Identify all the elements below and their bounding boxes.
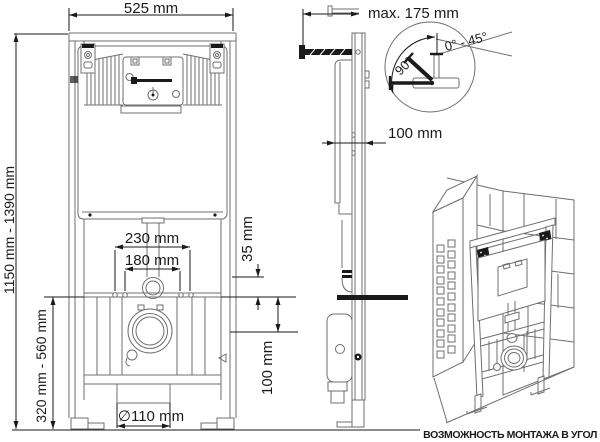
pipe-band	[342, 270, 352, 273]
fixing-hole	[123, 293, 127, 297]
flush-valve-dot	[152, 94, 155, 97]
flush-pipe-flange	[142, 218, 164, 223]
cistern-side	[335, 60, 352, 214]
dim-inlet-offset: 35 mm	[239, 216, 256, 262]
dim-fixing-inner: 180 mm	[125, 252, 179, 269]
cistern-nub-left	[88, 213, 91, 216]
dim-wall-distance: max. 175 mm	[368, 5, 459, 22]
outlet-duct	[117, 384, 170, 403]
frame3d-collar	[505, 312, 519, 323]
top-wall-bracket	[330, 9, 359, 13]
rod-wall-anchor	[299, 45, 305, 59]
housing-hole	[336, 345, 345, 354]
dim-outlet-height: 100 mm	[259, 341, 276, 395]
cistern-nub-right	[213, 213, 216, 216]
drain-ring-inner	[136, 317, 164, 345]
pipe-band	[342, 275, 352, 278]
side-rail	[352, 33, 365, 400]
corner-mount-caption: ВОЗМОЖНОСТЬ МОНТАЖА В УГОЛ	[423, 429, 597, 441]
dim-rotation-range: 0° - 45°	[443, 29, 489, 54]
bracket-dot	[542, 235, 544, 237]
dim-rotation-90: 90°	[392, 54, 417, 78]
dim-outlet-height-range: 320 mm - 560 mm	[33, 309, 49, 423]
frame3d-drain-inner	[508, 353, 520, 364]
bracket-dot	[480, 252, 482, 254]
section-marker	[219, 354, 226, 362]
dim-frame-depth: 100 mm	[388, 125, 442, 142]
bracket-dot	[546, 238, 548, 240]
dim-frame-height-range: 1150 mm - 1390 mm	[1, 166, 17, 294]
dim-frame-width: 525 mm	[124, 0, 178, 17]
rail-hole	[356, 50, 360, 54]
technical-drawing: 525 mm max. 175 mm 90° 0° - 45° 100 mm 1…	[0, 0, 600, 442]
rail-label-sticker	[70, 76, 78, 83]
panel-hole-right	[173, 91, 180, 98]
frame3d-clip	[494, 364, 501, 371]
mount-bracket-right	[210, 44, 224, 73]
pipe-elbow	[342, 278, 352, 292]
wc-fixing-studs	[337, 295, 408, 300]
fixing-hole	[113, 293, 117, 297]
corner-installation-view	[433, 176, 574, 423]
installation-drawing-page: 525 mm max. 175 mm 90° 0° - 45° 100 mm 1…	[0, 0, 600, 442]
side-foot-flange	[337, 422, 352, 427]
rail-knobs	[365, 71, 369, 88]
lever-vertical	[434, 55, 439, 78]
side-view	[299, 6, 408, 427]
hose-clip	[127, 350, 137, 360]
fixing-hole	[189, 293, 193, 297]
side-foot	[352, 400, 364, 427]
dim-outlet-diameter: ∅110 mm	[118, 408, 184, 425]
dim-fixing-outer: 230 mm	[125, 230, 179, 247]
mount-bracket-left	[81, 44, 95, 73]
fixing-hole	[179, 293, 183, 297]
housing-bolt-dot	[357, 356, 359, 358]
outlet-steps	[328, 382, 347, 403]
